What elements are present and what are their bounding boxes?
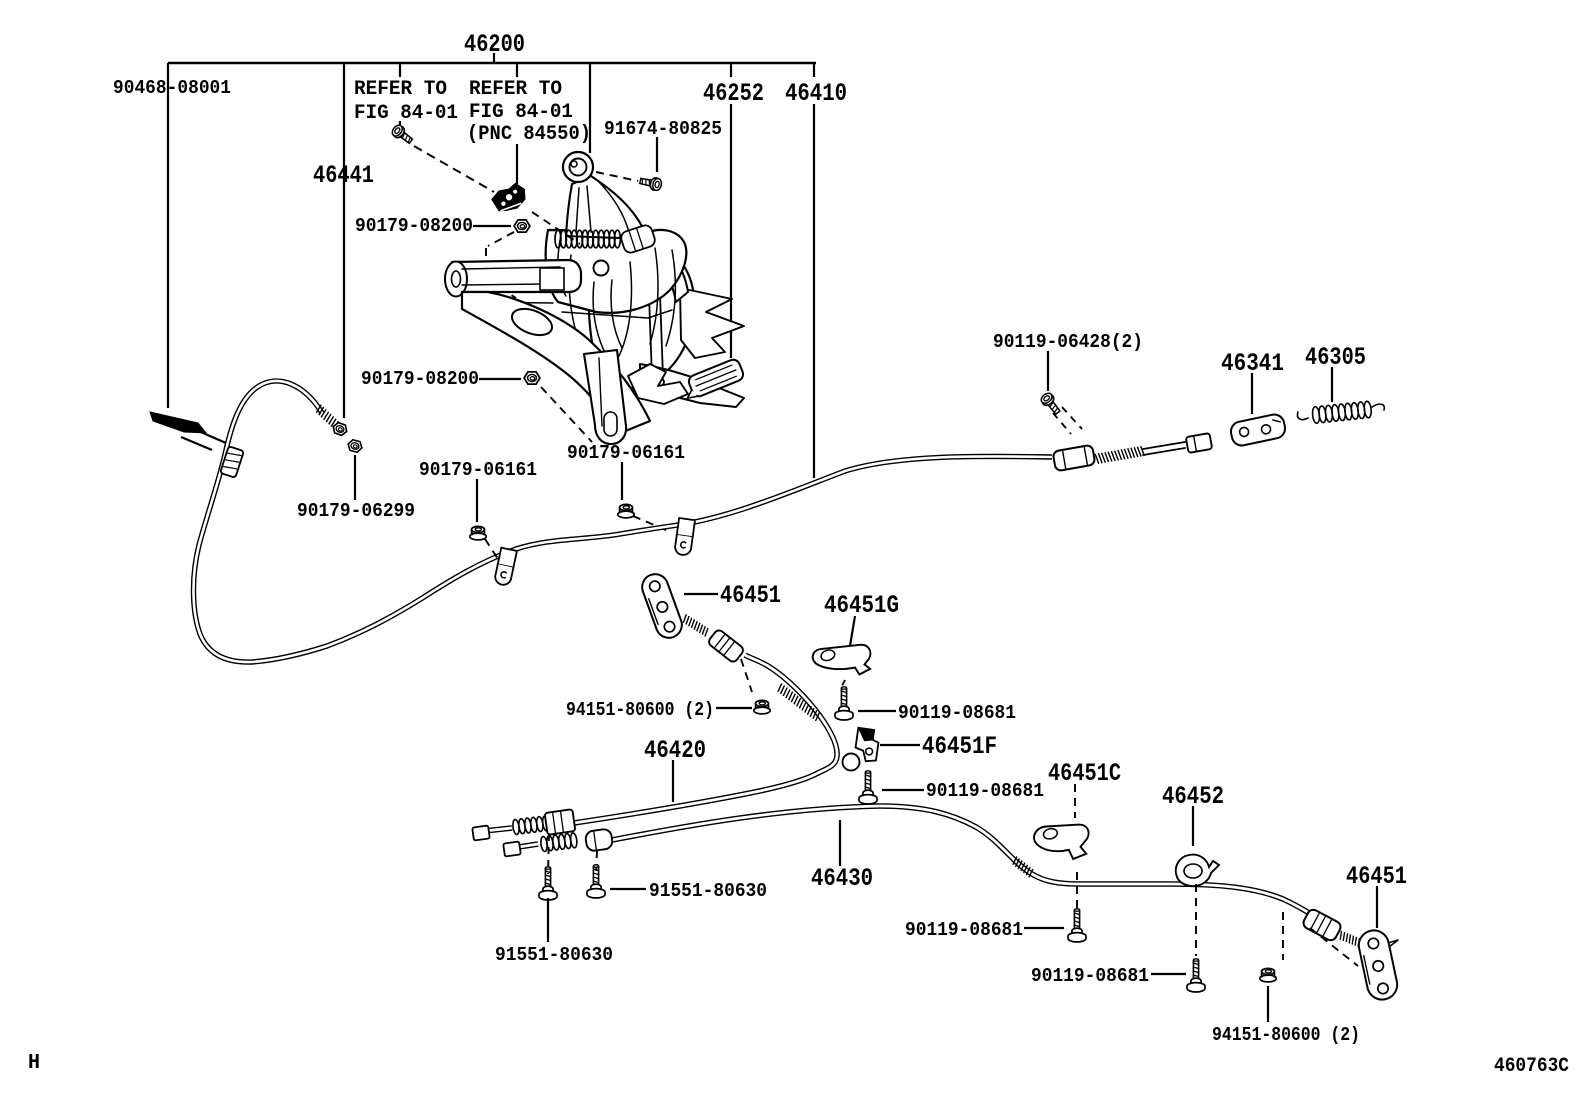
svg-text:94151-80600 (2): 94151-80600 (2) xyxy=(566,699,714,721)
svg-text:46410: 46410 xyxy=(785,79,847,108)
svg-text:90119-08681: 90119-08681 xyxy=(898,702,1016,724)
svg-text:46451: 46451 xyxy=(720,581,781,610)
svg-text:46430: 46430 xyxy=(811,864,873,893)
svg-text:FIG 84-01: FIG 84-01 xyxy=(469,101,573,124)
svg-text:46451C: 46451C xyxy=(1048,759,1121,788)
svg-text:90119-08681: 90119-08681 xyxy=(905,919,1023,941)
svg-text:46252: 46252 xyxy=(703,79,764,108)
svg-text:46451G: 46451G xyxy=(824,591,899,620)
svg-text:FIG 84-01: FIG 84-01 xyxy=(354,102,458,125)
svg-text:460763C: 460763C xyxy=(1494,1055,1569,1078)
svg-text:46305: 46305 xyxy=(1305,343,1366,372)
svg-text:90179-08200: 90179-08200 xyxy=(355,215,473,237)
svg-text:(PNC 84550): (PNC 84550) xyxy=(467,123,591,146)
svg-text:90179-08200: 90179-08200 xyxy=(361,368,479,390)
svg-text:46451F: 46451F xyxy=(922,732,997,761)
svg-text:H: H xyxy=(28,1052,40,1075)
svg-text:94151-80600 (2): 94151-80600 (2) xyxy=(1212,1024,1360,1046)
svg-text:91551-80630: 91551-80630 xyxy=(649,880,767,902)
svg-text:90468-08001: 90468-08001 xyxy=(113,77,231,99)
svg-text:REFER TO: REFER TO xyxy=(469,78,562,101)
svg-text:REFER TO: REFER TO xyxy=(354,78,447,101)
svg-text:91551-80630: 91551-80630 xyxy=(495,944,613,966)
svg-text:46420: 46420 xyxy=(644,736,706,765)
svg-text:90179-06161: 90179-06161 xyxy=(567,442,685,464)
svg-text:90119-08681: 90119-08681 xyxy=(926,780,1044,802)
svg-text:91674-80825: 91674-80825 xyxy=(604,118,722,140)
svg-text:90119-08681: 90119-08681 xyxy=(1031,965,1149,987)
svg-text:46441: 46441 xyxy=(313,161,374,190)
svg-text:90179-06161: 90179-06161 xyxy=(419,459,537,481)
svg-text:90119-06428(2): 90119-06428(2) xyxy=(993,331,1143,353)
svg-text:90179-06299: 90179-06299 xyxy=(297,500,415,522)
